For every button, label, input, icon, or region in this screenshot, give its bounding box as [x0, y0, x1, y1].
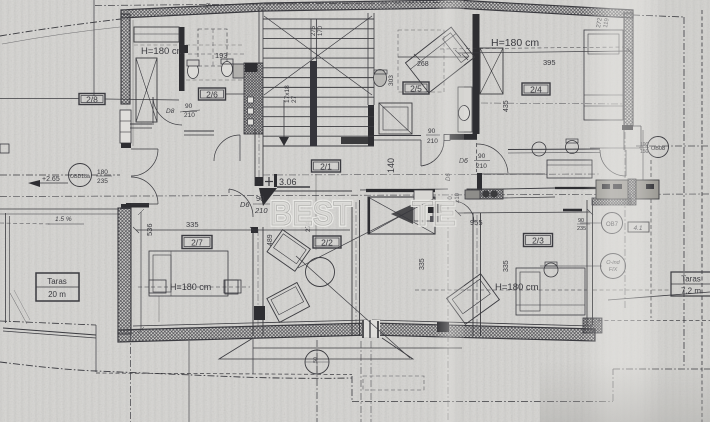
svg-text:210: 210	[476, 163, 487, 170]
svg-text:D8: D8	[166, 108, 175, 115]
svg-text:1.5 %: 1.5 %	[55, 216, 72, 223]
svg-text:2/1: 2/1	[320, 161, 332, 171]
svg-text:2/6: 2/6	[206, 89, 218, 99]
svg-text:955: 955	[470, 218, 483, 227]
svg-text:BEST: BEST	[270, 195, 352, 233]
svg-text:268: 268	[417, 61, 429, 68]
svg-text:180: 180	[97, 169, 108, 176]
svg-text:193: 193	[215, 51, 228, 60]
svg-text:H=180 cm: H=180 cm	[495, 282, 539, 293]
svg-text:489: 489	[267, 234, 274, 246]
svg-text:140: 140	[386, 158, 396, 173]
svg-text:20 m: 20 m	[48, 290, 66, 299]
svg-text:275: 275	[311, 25, 317, 36]
svg-text:335: 335	[186, 220, 199, 229]
svg-text:OBD18a: OBD18a	[70, 174, 90, 180]
svg-text:303: 303	[388, 75, 395, 86]
svg-text:235: 235	[97, 178, 108, 185]
svg-text:2/2: 2/2	[321, 237, 333, 247]
svg-text:435: 435	[503, 100, 510, 112]
svg-text:3.06: 3.06	[279, 177, 297, 187]
svg-text:2/4: 2/4	[530, 84, 542, 94]
svg-text:90: 90	[256, 194, 264, 203]
svg-text:210: 210	[254, 206, 268, 215]
svg-text:90: 90	[478, 153, 486, 160]
svg-text:395: 395	[543, 58, 556, 67]
svg-text:H=180 cm: H=180 cm	[491, 37, 539, 49]
svg-text:+2.65: +2.65	[42, 176, 60, 183]
svg-text:Taras: Taras	[681, 275, 701, 284]
svg-text:2/3: 2/3	[532, 235, 544, 245]
svg-text:D6: D6	[240, 200, 250, 209]
svg-text:2/5: 2/5	[410, 83, 422, 93]
svg-text:536: 536	[145, 223, 154, 236]
svg-text:2/7: 2/7	[191, 237, 203, 247]
svg-text:27: 27	[291, 95, 298, 103]
svg-text:17x18: 17x18	[284, 85, 291, 103]
svg-text:335: 335	[503, 260, 510, 272]
svg-text:Taras: Taras	[47, 277, 67, 286]
svg-text:2/8: 2/8	[86, 94, 98, 104]
svg-text:335: 335	[419, 258, 426, 270]
svg-text:170: 170	[318, 25, 324, 36]
svg-text:H=180 cm: H=180 cm	[141, 46, 185, 57]
svg-text:210: 210	[184, 112, 195, 119]
svg-text:90: 90	[185, 103, 193, 110]
